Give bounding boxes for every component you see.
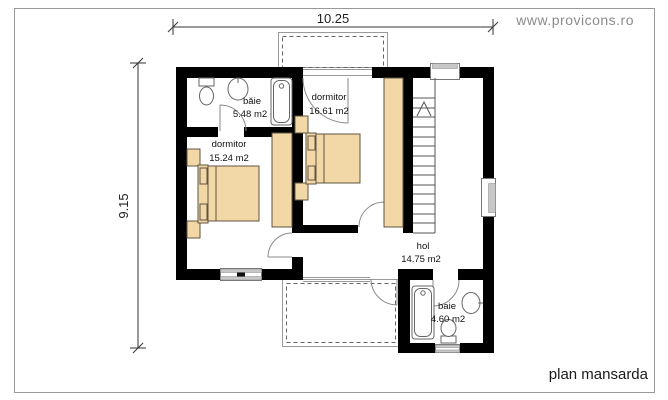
- wall-bath-upper-left: [187, 127, 218, 137]
- room-name: dormitor: [212, 139, 247, 150]
- room-label-bath-lower: baie 4.60 m2: [431, 301, 465, 325]
- wall-bath-lower-bottom-left: [398, 343, 435, 353]
- nightstand: [187, 149, 200, 166]
- sink: [462, 293, 480, 314]
- wall-bath-lower-bottom-right: [460, 343, 494, 353]
- wall-bottom-left: [176, 269, 220, 280]
- balcony-bottom: [283, 280, 400, 347]
- wall-top-left: [176, 67, 303, 78]
- room-name: baie: [438, 301, 456, 312]
- window-bedroom-bottom: [221, 269, 262, 281]
- stair-treads: [413, 98, 435, 233]
- wardrobe-bedroom-right: [384, 78, 403, 227]
- bed-bedroom-right: [295, 116, 360, 200]
- wardrobe-bedroom-left: [272, 133, 292, 227]
- floor-plan-canvas: www.provicons.ro 10.25 9.15: [0, 0, 668, 400]
- balcony-top: [279, 33, 388, 68]
- bed-mattress: [316, 134, 360, 183]
- room-name: dormitor: [312, 92, 347, 103]
- wall-right-lower: [483, 217, 494, 353]
- wall-right-upper: [483, 67, 494, 178]
- wall-bedroom-divider: [292, 67, 303, 232]
- wall-bottom-mid: [262, 269, 303, 280]
- wall-bedroom2-bottom: [292, 225, 358, 233]
- window-top: [431, 64, 460, 80]
- wall-top-mid: [372, 67, 430, 78]
- wall-bath-lower-left: [398, 269, 410, 353]
- room-area: 16.61 m2: [309, 106, 349, 117]
- nightstand: [187, 221, 200, 238]
- website-text: www.provicons.ro: [515, 12, 634, 28]
- dimension-top-label: 10.25: [317, 11, 350, 26]
- wall-divider-stub: [292, 257, 303, 269]
- bathtub-faucet: [421, 291, 425, 295]
- toilet-tank: [199, 78, 214, 86]
- window-right: [482, 179, 496, 217]
- room-label-bedroom-left: dormitor 15.24 m2: [209, 139, 249, 164]
- room-area: 5.48 m2: [233, 109, 267, 120]
- door-bedroom-left: [268, 233, 292, 257]
- room-name: hol: [417, 241, 430, 252]
- nightstand: [295, 183, 308, 200]
- room-label-bedroom-right: dormitor 16.61 m2: [309, 92, 349, 117]
- toilet-tank: [441, 336, 456, 343]
- room-name: băie: [243, 96, 261, 107]
- wall-left: [176, 67, 187, 280]
- toilet-bowl: [200, 87, 214, 105]
- pillow: [200, 204, 207, 220]
- room-area: 14.75 m2: [401, 254, 441, 265]
- window-bath-bottom: [436, 345, 460, 353]
- nightstand: [295, 116, 308, 133]
- door-bedroom-right: [359, 202, 384, 227]
- plan-title: plan mansarda: [549, 366, 649, 383]
- room-area: 4.60 m2: [431, 314, 465, 325]
- bathtub-faucet: [279, 84, 283, 88]
- room-label-hall: hol 14.75 m2: [401, 241, 441, 265]
- pillow: [308, 136, 315, 150]
- staircase: [413, 78, 435, 233]
- pillow: [200, 168, 207, 184]
- wall-bath-lower-top-right: [458, 269, 483, 280]
- dimension-left: 9.15: [116, 58, 146, 353]
- dimension-left-label: 9.15: [116, 193, 131, 218]
- wall-staircase: [403, 78, 413, 233]
- room-area: 15.24 m2: [209, 153, 249, 164]
- stairs-up-arrow-icon: [417, 102, 431, 116]
- pillow: [308, 166, 315, 180]
- dimension-top: 10.25: [168, 11, 498, 35]
